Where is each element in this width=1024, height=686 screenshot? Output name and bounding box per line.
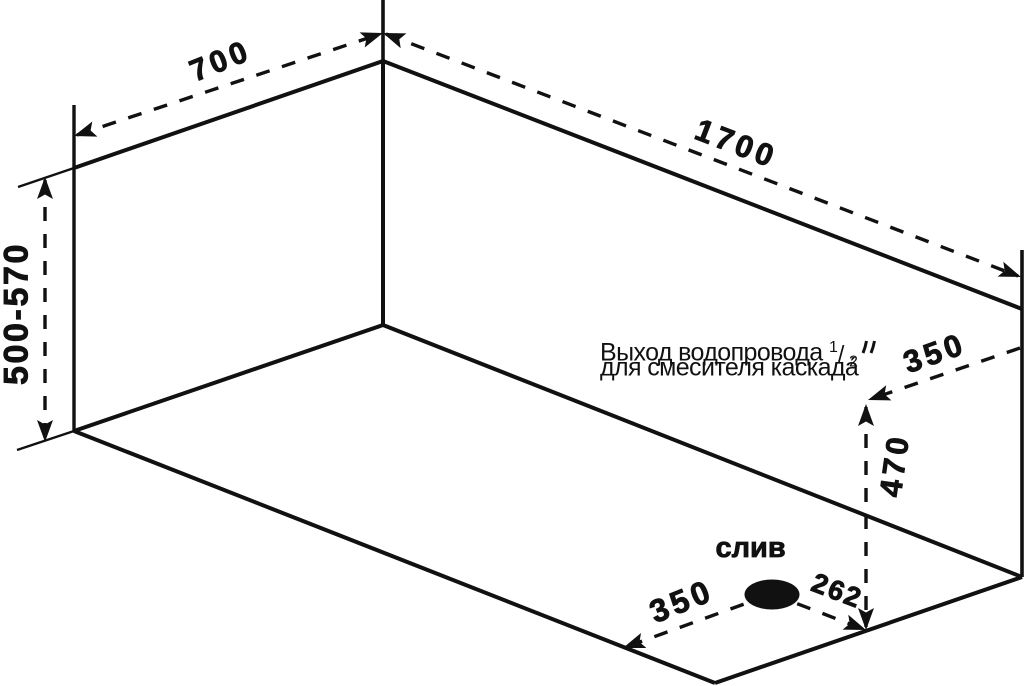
svg-text:350: 350 [899, 326, 971, 380]
svg-text:470: 470 [873, 431, 917, 499]
svg-text:для смесителя каскада́: для смесителя каскада́ [600, 354, 859, 382]
svg-text:500-570: 500-570 [0, 242, 35, 385]
svg-text:1700: 1700 [690, 112, 782, 175]
svg-text:262: 262 [808, 567, 868, 615]
svg-text:700: 700 [185, 33, 256, 88]
svg-text:слив: слив [716, 532, 786, 564]
svg-text:350: 350 [644, 572, 718, 630]
